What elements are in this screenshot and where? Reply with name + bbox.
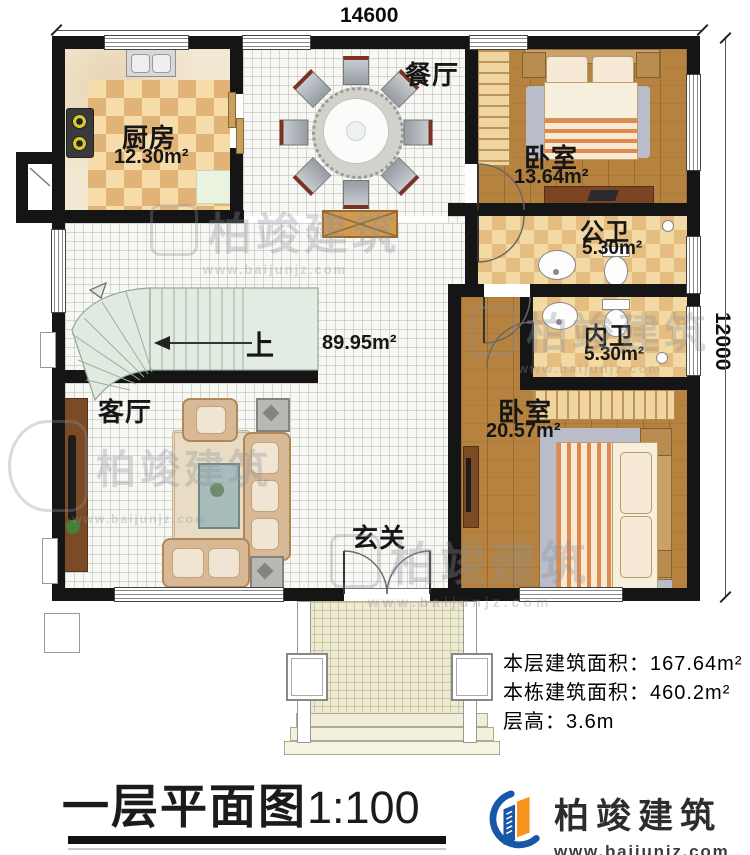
- door-arc-public-bath: [478, 216, 524, 262]
- door-arc-private-bath: [487, 322, 533, 368]
- storey-height-value: 3.6m: [566, 711, 614, 733]
- floor-area-label: 本层建筑面积：: [503, 653, 650, 675]
- door-arc-bedroom2: [484, 297, 530, 343]
- label-stairs-up: 上: [246, 324, 275, 364]
- logo-website: www.baijunjz.com: [554, 842, 730, 855]
- total-area-label: 本栋建筑面积：: [503, 682, 650, 704]
- door-arc-entry-right: [387, 551, 430, 594]
- logo-mark-icon: [488, 788, 546, 850]
- floor-area-value: 167.64m²: [650, 653, 743, 675]
- area-notes: 本层建筑面积：167.64m² 本栋建筑面积：460.2m² 层高：3.6m: [503, 650, 743, 737]
- logo-name: 柏竣建筑: [554, 788, 730, 839]
- company-logo: 柏竣建筑 www.baijunjz.com: [488, 788, 730, 855]
- plan-title: 一层平面图1:100: [62, 768, 420, 837]
- logo-tower-blue: [503, 805, 515, 846]
- title-underline-thin: [68, 848, 446, 850]
- plan-title-scale: 1:100: [307, 782, 420, 833]
- label-dining: 餐厅: [405, 55, 459, 92]
- label-foyer: 玄关: [352, 518, 406, 555]
- title-underline: [68, 836, 446, 844]
- total-area-value: 460.2m²: [650, 682, 730, 704]
- side-door-leaf: [30, 168, 50, 186]
- label-private-bath-area: 5.30m²: [584, 344, 644, 366]
- label-kitchen-area: 12.30m²: [114, 146, 189, 169]
- plan-title-text: 一层平面图: [62, 780, 307, 833]
- label-public-bath-area: 5.30m²: [582, 238, 642, 260]
- logo-tower-orange: [517, 797, 530, 838]
- door-arc-entry-left: [344, 551, 387, 594]
- label-bedroom2-area: 20.57m²: [486, 420, 561, 443]
- label-living: 客厅: [98, 392, 152, 429]
- floor-plan-page: 14600 12000: [0, 0, 750, 855]
- label-bedroom1-area: 13.64m²: [514, 166, 589, 189]
- label-open-area: 89.95m²: [322, 332, 397, 355]
- storey-height-label: 层高：: [503, 711, 566, 733]
